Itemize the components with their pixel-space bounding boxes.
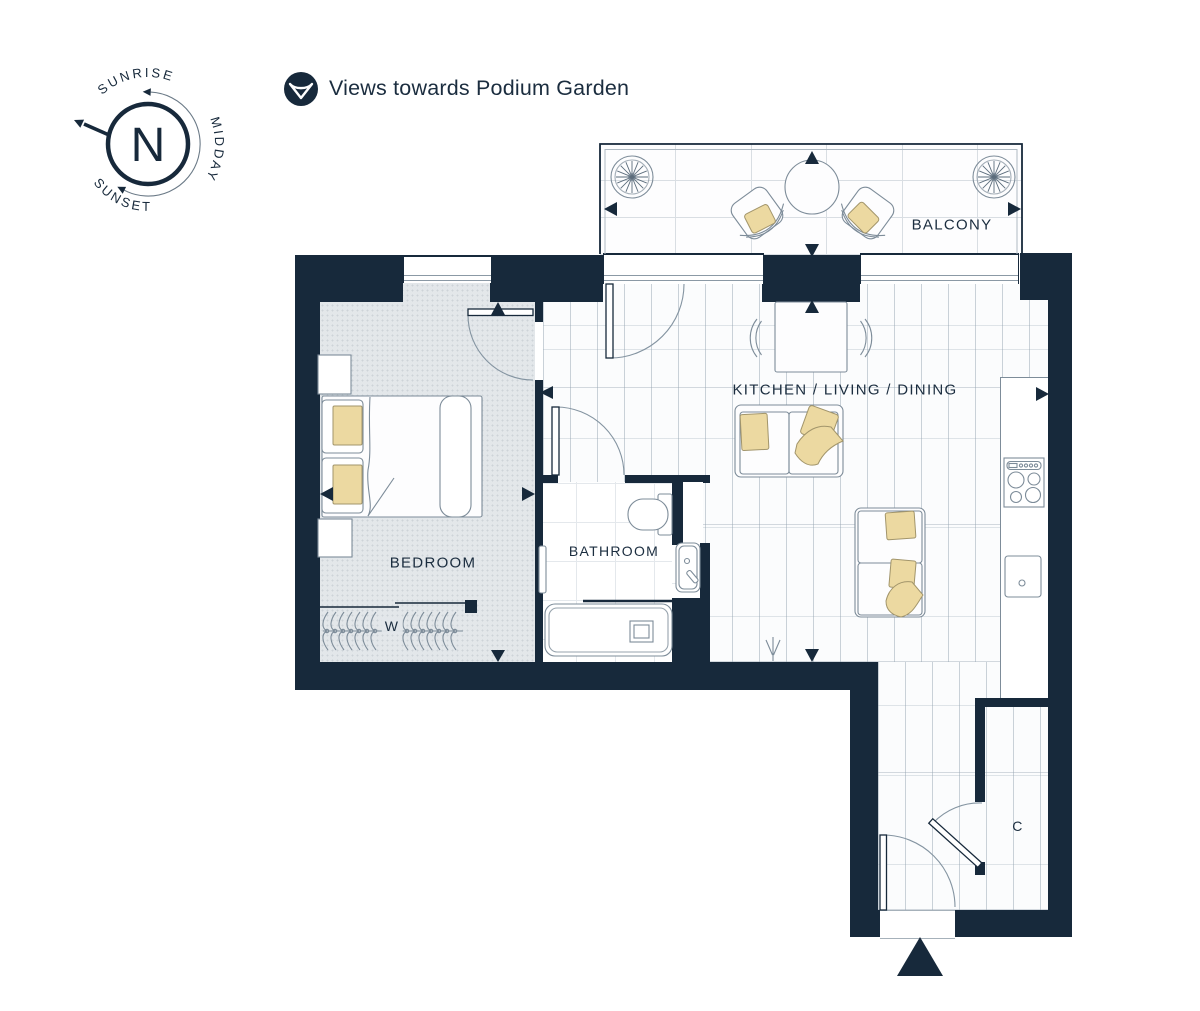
wall-cupboard-west-upper [975, 707, 985, 802]
window-sill-line [604, 280, 763, 281]
wall-corridor-west [850, 662, 878, 937]
wall-bathroom-southeast-block [672, 598, 710, 662]
legend-label: Views towards Podium Garden [329, 76, 629, 101]
service-void [683, 482, 703, 543]
kitchen-counter [1000, 377, 1049, 699]
entrance-arrow-icon [897, 937, 943, 976]
bedroom-floor [320, 283, 535, 662]
compass-midday: MIDDAY [203, 115, 227, 185]
compass-north: N [131, 119, 166, 172]
floor-plan-page: BALCONY KITCHEN / LIVING / DINING BEDROO… [0, 0, 1200, 1011]
window-frame-line [404, 255, 491, 257]
wall-bedroom-east-jamb [535, 302, 543, 322]
wall-north-bedroom-left [295, 255, 403, 302]
wall-cupboard-west-stub [975, 862, 985, 875]
window-sill-line [404, 280, 491, 281]
wardrobe-end-post [465, 600, 477, 613]
bathroom-sink-nook-floor [672, 543, 700, 600]
svg-text:SUNRISE: SUNRISE [95, 65, 177, 97]
wardrobe-label: W [382, 618, 403, 634]
bedroom-label: BEDROOM [390, 555, 477, 572]
wall-northeast-corner [1020, 253, 1072, 300]
north-arrow-icon [74, 120, 109, 135]
window-frame-line [861, 253, 1018, 255]
wall-bedroom-east-lower [535, 380, 543, 662]
balcony-floor [600, 143, 1022, 255]
window-sill-line [604, 275, 763, 276]
wall-bathroom-east-upper [672, 482, 683, 545]
svg-text:MIDDAY: MIDDAY [203, 115, 227, 185]
wall-east [1048, 300, 1072, 937]
window-sill-line [861, 275, 1018, 276]
bedroom-window [403, 255, 492, 283]
wall-west [295, 255, 320, 690]
bathroom-label: BATHROOM [569, 543, 659, 559]
wall-bathroom-east-nook [700, 543, 710, 600]
balcony-label: BALCONY [912, 217, 993, 234]
compass: N SUNRISE MIDDAY SUNSET [48, 42, 248, 227]
view-legend-icon [284, 72, 318, 106]
entrance-threshold [880, 910, 955, 939]
window-frame-line [604, 253, 763, 255]
wall-north-bedroom-right [490, 255, 603, 302]
cupboard-label: C [1012, 818, 1023, 834]
living-window-west [603, 253, 764, 284]
wall-south-main [295, 662, 850, 690]
window-sill-line [861, 280, 1018, 281]
bathroom-floor [543, 482, 673, 662]
window-sill-line [404, 275, 491, 276]
wall-cupboard-north [975, 698, 1048, 707]
compass-sunrise: SUNRISE [95, 65, 177, 97]
wall-north-pillar [762, 255, 860, 302]
wall-south-entrance-right [955, 910, 1072, 937]
wall-south-entrance-left [850, 910, 880, 937]
kitchen-living-dining-label: KITCHEN / LIVING / DINING [732, 382, 957, 399]
living-window-east [860, 253, 1019, 284]
